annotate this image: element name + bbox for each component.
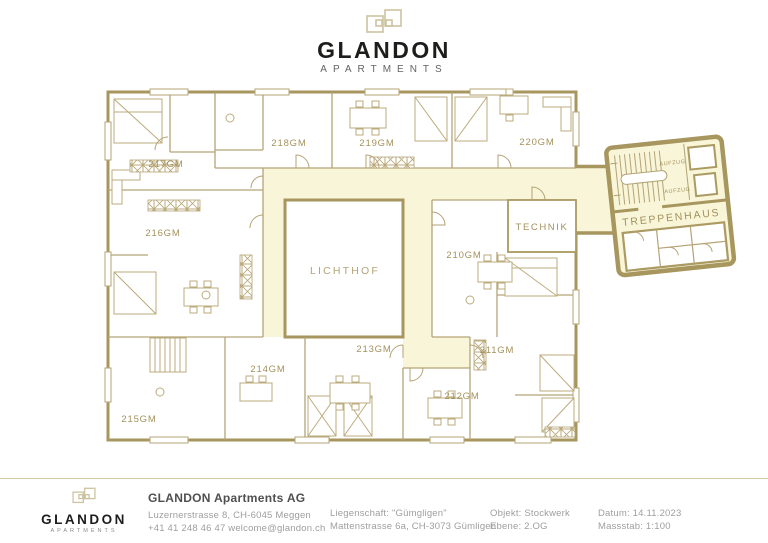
unit-label: 215GM <box>121 414 156 425</box>
sofa-icon <box>543 97 571 131</box>
footer: GLANDON APARTMENTS GLANDON Apartments AG… <box>0 478 768 543</box>
unit-label: 214GM <box>250 364 285 375</box>
unit-label: 216GM <box>145 228 180 239</box>
bed-icon <box>455 97 487 141</box>
company-address: Luzernerstrasse 8, CH-6045 Meggen <box>148 509 325 522</box>
unit-label: 218GM <box>271 138 306 149</box>
unit-label: 211GM <box>480 345 514 356</box>
footer-logo: GLANDON APARTMENTS <box>38 487 130 534</box>
glandon-logo-icon-small <box>70 487 98 505</box>
footer-brand-name: GLANDON <box>38 512 130 527</box>
table-icon <box>350 101 386 135</box>
bed-icon <box>540 355 574 391</box>
elevator-shaft <box>688 145 716 170</box>
bed-icon <box>505 258 557 296</box>
table-icon <box>240 376 272 401</box>
bed-icon <box>114 272 156 314</box>
unit-label: 219GM <box>359 138 394 149</box>
stairwell-wing: AUFZUG AUFZUG TREPPENHAUS <box>606 136 735 275</box>
fixture-icon <box>226 114 234 122</box>
fixture-icon <box>156 388 164 396</box>
unit-label: 213GM <box>356 344 391 355</box>
meta-date: Datum: 14.11.2023 <box>598 507 682 520</box>
unit-label: 220GM <box>519 137 554 148</box>
elevator-shaft <box>694 173 717 196</box>
footer-company-block: GLANDON Apartments AG Luzernerstrasse 8,… <box>148 491 325 535</box>
unit-label: 217GM <box>148 159 183 170</box>
meta-scale: Massstab: 1:100 <box>598 520 682 533</box>
technik-label: TECHNIK <box>516 222 569 233</box>
bed-icon <box>415 97 447 141</box>
table-icon <box>184 281 218 313</box>
lichthof-label: LICHTHOF <box>310 265 380 277</box>
footer-brand-tagline: APARTMENTS <box>38 528 130 534</box>
stair-icon <box>150 338 186 372</box>
bed-icon <box>114 99 162 143</box>
unit-label: 212GM <box>444 391 479 402</box>
footer-object-block: Objekt: Stockwerk Ebene: 2.OG <box>490 507 570 533</box>
object-line1: Objekt: Stockwerk <box>490 507 570 520</box>
sofa-icon <box>112 170 140 204</box>
property-line2: Mattenstrasse 6a, CH-3073 Gümligen <box>330 520 496 533</box>
unit-label: 210GM <box>446 250 481 261</box>
company-contact: +41 41 248 46 47 welcome@glandon.ch <box>148 522 325 535</box>
property-line1: Liegenschaft: "Gümgligen" <box>330 507 496 520</box>
company-name: GLANDON Apartments AG <box>148 491 325 505</box>
object-line2: Ebene: 2.OG <box>490 520 570 533</box>
page: GLANDON APARTMENTS <box>0 0 768 543</box>
fixture-icon <box>466 296 474 304</box>
floor-plan: AUFZUG AUFZUG TREPPENHAUS LICHTHOF TECHN… <box>0 0 768 543</box>
footer-property-block: Liegenschaft: "Gümgligen" Mattenstrasse … <box>330 507 496 533</box>
footer-meta-block: Datum: 14.11.2023 Massstab: 1:100 <box>598 507 682 533</box>
